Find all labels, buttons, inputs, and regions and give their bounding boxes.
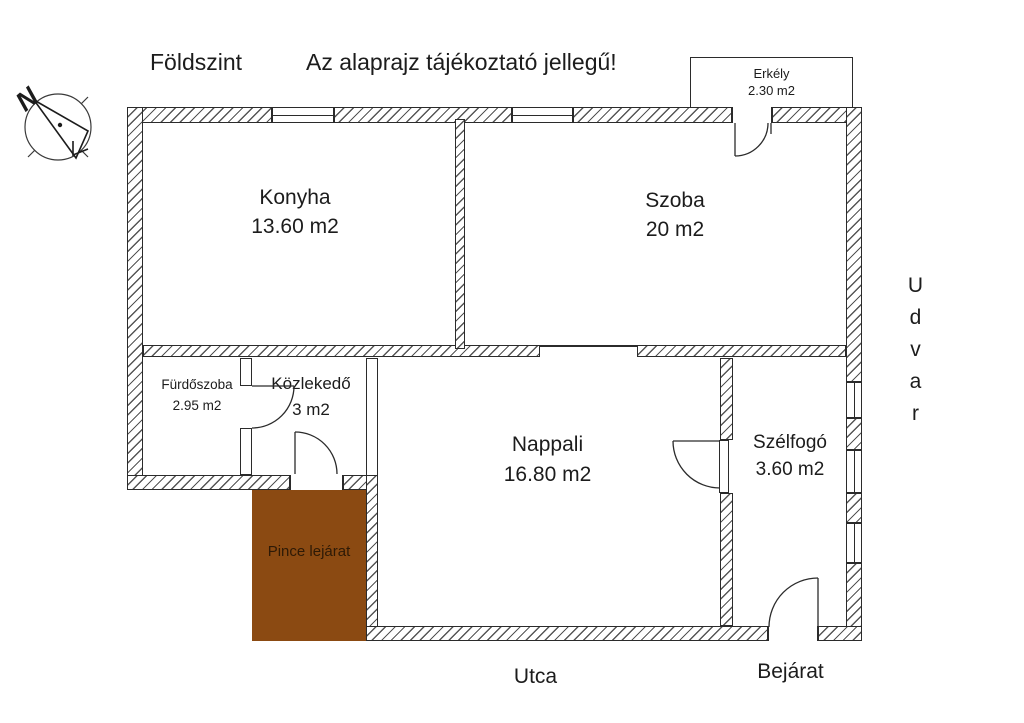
threshold-bejarat-door [768,626,818,641]
wall-right-1 [846,107,862,382]
room-area-nappali: 16.80 m2 [450,460,645,490]
bejarat-door [769,578,818,627]
pince-lejarat-area: Pince lejárat [252,490,366,641]
wall-bottom-1 [366,626,768,641]
room-area-erkely: 2.30 m2 [691,82,852,99]
room-area-kozlekedo: 3 m2 [256,397,366,423]
room-name-furdoszoba: Fürdőszoba [142,374,252,395]
room-name-szelfogo: Szélfogó [734,429,846,456]
wall-bathroom-bottom-1 [127,475,290,490]
window-right-2 [846,450,862,493]
wall-nappali-szelfogo-1 [720,358,733,440]
wall-mid-1 [143,345,540,357]
wall-top-2 [334,107,512,123]
room-name-konyha: Konyha [200,183,390,212]
floor-title: Földszint [150,49,242,76]
floor-plan: Földszint Az alaprajz tájékoztató jelleg… [0,0,1024,723]
north-compass-icon: N [10,80,110,180]
erkely-door [735,123,771,156]
window-top-1 [272,107,334,123]
room-name-szoba: Szoba [580,186,770,215]
wall-top-1 [127,107,272,123]
room-label-szelfogo: Szélfogó 3.60 m2 [734,429,846,483]
disclaimer-text: Az alaprajz tájékoztató jellegű! [306,49,617,76]
wall-kozlekedo-nappali [366,358,378,476]
wall-bottom-2 [818,626,862,641]
threshold-erkely-door [732,107,772,123]
wall-mid-2 [637,345,846,357]
wall-konyha-szoba [455,119,465,349]
wall-pince-right [366,475,378,641]
room-area-konyha: 13.60 m2 [200,212,390,241]
compass-needle [34,100,88,158]
wall-nappali-szelfogo-2 [720,493,733,626]
north-label: N [10,81,44,117]
kozlekedo-door [295,432,337,474]
wall-right-3 [846,493,862,523]
room-label-nappali: Nappali 16.80 m2 [450,430,645,490]
room-area-furdoszoba: 2.95 m2 [142,395,252,416]
udvar-label: Udvar [903,274,927,434]
wall-left [127,107,143,490]
room-name-erkely: Erkély [691,65,852,82]
opening-szoba-nappali [540,345,637,347]
threshold-kozlekedo-door [290,475,343,490]
room-area-szoba: 20 m2 [580,215,770,244]
room-label-furdoszoba: Fürdőszoba 2.95 m2 [142,374,252,416]
window-top-2 [512,107,573,123]
wall-right-2 [846,418,862,450]
utca-label: Utca [488,665,583,689]
room-name-nappali: Nappali [450,430,645,460]
room-name-kozlekedo: Közlekedő [256,371,366,397]
room-label-kozlekedo: Közlekedő 3 m2 [256,371,366,423]
window-right-3 [846,523,862,563]
room-label-konyha: Konyha 13.60 m2 [200,183,390,241]
window-right-1 [846,382,862,418]
room-erkely: Erkély 2.30 m2 [690,57,853,108]
nappali-szelfogo-door [673,441,720,488]
wall-top-3 [573,107,732,123]
room-label-szoba: Szoba 20 m2 [580,186,770,244]
door-leaf-nappali-szelfogo [719,440,729,493]
wall-furdo-kozlekedo-2 [240,428,252,475]
room-area-szelfogo: 3.60 m2 [734,456,846,483]
pince-label: Pince lejárat [268,543,351,560]
bejarat-label: Bejárat [738,660,843,684]
